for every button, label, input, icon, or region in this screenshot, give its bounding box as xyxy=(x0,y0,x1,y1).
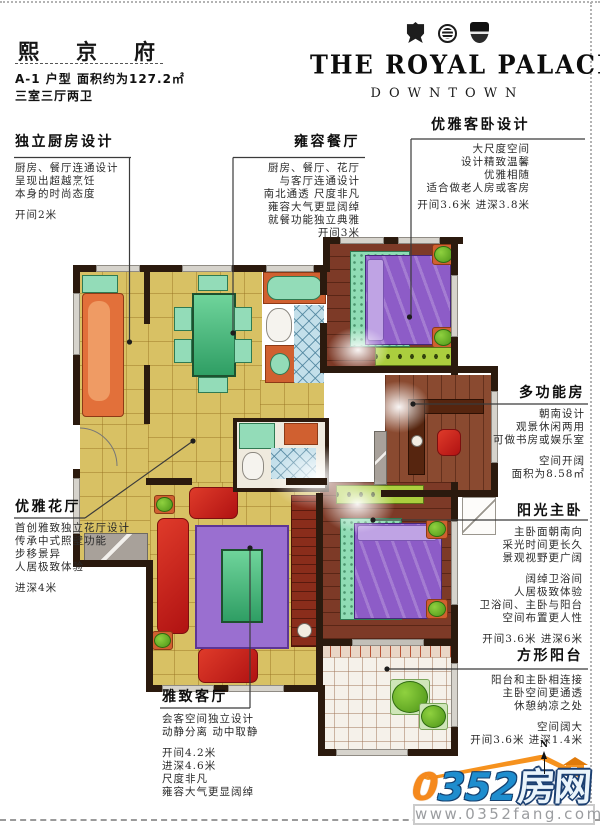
wall-segment xyxy=(144,365,150,424)
callout-title: 方形阳台 xyxy=(420,648,583,664)
callout-line: 就餐功能独立典雅 xyxy=(200,214,360,227)
page-border-top xyxy=(0,1,600,3)
north-arrow-icon: N xyxy=(536,741,552,774)
logo-digits: 352 xyxy=(437,765,519,809)
callout-title: 优雅客卧设计 xyxy=(330,117,530,133)
callout-guest-bedroom: 优雅客卧设计 大尺度空间 设计精致温馨 优雅相随 适合做老人房或客房 开间3.6… xyxy=(330,117,530,212)
callout-dimensions: 开间3.6米 进深3.8米 xyxy=(330,199,530,212)
wall-segment xyxy=(316,493,323,685)
page-title: 熙京府 xyxy=(18,36,192,66)
callout-line: 适合做老人房或客房 xyxy=(330,182,530,195)
desk-mirror xyxy=(411,435,423,447)
unit-area-line: A-1 户型 面积约为127.2㎡ xyxy=(15,70,185,87)
brand-badges xyxy=(310,20,585,43)
entry-door-gap xyxy=(73,425,80,469)
callout-title: 雅致客厅 xyxy=(162,689,312,705)
compass-label: N xyxy=(536,741,552,750)
callout-line: 主卧面朝南向 xyxy=(420,526,583,539)
round-seal-badge-icon xyxy=(438,24,457,43)
floorplan-flyer-page: 熙京府 A-1 户型 面积约为127.2㎡ 三室三厅两卫 THE ROYAL P… xyxy=(0,0,600,827)
callout-line: 空间阔大 xyxy=(420,721,583,734)
window xyxy=(182,265,232,272)
wall-segment xyxy=(320,323,327,373)
callout-line: 空间布置更人性 xyxy=(420,612,583,625)
wall-segment xyxy=(146,478,192,485)
window xyxy=(336,749,408,756)
callout-master-bedroom: 阳光主卧 主卧面朝南向 采光时间更长久 景观视野更广阔 阔绰卫浴间 人居极致体验… xyxy=(420,503,583,646)
kitchen-sink xyxy=(82,275,118,293)
site-logo: 0352房网 xyxy=(411,768,591,806)
bathtub xyxy=(267,276,322,300)
callout-multi-function: 多功能房 朝南设计 观景休闲两用 可做书房或娱乐室 空间开阔 面积为8.58㎡ xyxy=(425,385,585,481)
callout-line: 采光时间更长久 xyxy=(420,539,583,552)
brand-block: THE ROYAL PALACE DOWNTOWN xyxy=(310,20,585,101)
brand-name: THE ROYAL PALACE xyxy=(310,49,585,80)
wall-segment xyxy=(286,478,327,485)
toilet-icon xyxy=(242,452,264,480)
sofa-armchair xyxy=(198,648,258,683)
callout-line: 首创雅致独立花厅设计 xyxy=(15,522,165,535)
callout-line: 厨房、餐厅连通设计 xyxy=(15,162,145,175)
callout-line: 观景休闲两用 xyxy=(425,421,585,434)
callout-line: 休憩纳凉之处 xyxy=(420,700,583,713)
callout-dimensions: 进深4米 xyxy=(15,582,165,595)
callout-line: 开间4.2米 xyxy=(162,747,312,760)
callout-title: 独立厨房设计 xyxy=(15,134,145,150)
window xyxy=(96,265,140,272)
callout-line: 景观视野更广阔 xyxy=(420,552,583,565)
coffee-table xyxy=(221,549,263,623)
window xyxy=(266,265,314,272)
callout-line: 面积为8.58㎡ xyxy=(425,468,585,481)
callout-line: 本身的时尚态度 xyxy=(15,188,145,201)
callout-line: 会客空间独立设计 xyxy=(162,713,312,726)
dining-table xyxy=(192,293,236,377)
callout-living-room: 雅致客厅 会客空间独立设计 动静分离 动中取静 开间4.2米 进深4.6米 尺度… xyxy=(162,689,312,799)
bathroom2-sink xyxy=(284,423,318,445)
crest-badge-icon xyxy=(406,22,425,43)
window xyxy=(73,293,80,355)
dining-chair xyxy=(174,307,192,331)
callout-line: 朝南设计 xyxy=(425,408,585,421)
callout-line: 人居极致体验 xyxy=(420,586,583,599)
callout-title: 阳光主卧 xyxy=(420,503,583,519)
dining-chair xyxy=(174,339,192,363)
logo-cn-text: 房网 xyxy=(516,765,591,809)
wall-segment xyxy=(144,269,150,324)
callout-line: 人居极致体验 xyxy=(15,561,165,574)
wall-segment xyxy=(381,490,498,497)
wall-segment xyxy=(320,265,327,295)
callout-dimensions: 开间3.6米 进深6米 xyxy=(420,633,583,646)
dining-chair xyxy=(198,377,228,393)
callout-line: 阳台和主卧相连接 xyxy=(420,674,583,687)
callout-line: 传承中式照壁功能 xyxy=(15,535,165,548)
callout-line: 可做书房或娱乐室 xyxy=(425,434,585,447)
callout-line: 设计精致温馨 xyxy=(330,156,530,169)
callout-balcony: 方形阳台 阳台和主卧相连接 主卧空间更通透 休憩纳凉之处 空间阔大 开间3.6米… xyxy=(420,648,583,747)
callout-dimensions: 开间3.6米 进深1.4米 xyxy=(420,734,583,747)
callout-line: 大尺度空间 xyxy=(330,143,530,156)
sketch-highlight xyxy=(320,475,395,533)
title-divider xyxy=(15,63,163,64)
logo-zero: 0 xyxy=(410,765,440,809)
callout-line: 卫浴间、主卧与阳台 xyxy=(420,599,583,612)
sofa-armchair xyxy=(189,487,238,519)
callout-dimensions: 开间3米 xyxy=(200,227,360,240)
window xyxy=(352,639,424,646)
sketch-highlight xyxy=(368,381,430,433)
kitchen-counter-top xyxy=(88,301,110,401)
callout-flower-hall: 优雅花厅 首创雅致独立花厅设计 传承中式照壁功能 步移景异 人居极致体验 进深4… xyxy=(15,499,165,595)
callout-line: 主卧空间更通透 xyxy=(420,687,583,700)
window xyxy=(398,237,440,244)
callout-dimensions: 开间2米 xyxy=(15,209,145,222)
callout-line: 动静分离 动中取静 xyxy=(162,726,312,739)
wall-segment xyxy=(318,639,352,646)
toilet-icon xyxy=(266,308,292,342)
callout-line: 雍容大气更显阔绰 xyxy=(162,786,312,799)
dining-chair xyxy=(234,339,252,363)
callout-line: 进深4.6米 xyxy=(162,760,312,773)
brand-tagline: DOWNTOWN xyxy=(310,86,585,101)
callout-line: 呈现出超越烹饪 xyxy=(15,175,145,188)
room-count-line: 三室三厅两卫 xyxy=(15,87,93,104)
callout-line: 优雅相随 xyxy=(330,169,530,182)
dining-chair xyxy=(234,307,252,331)
shield-badge-icon xyxy=(470,22,489,43)
callout-line: 阔绰卫浴间 xyxy=(420,573,583,586)
callout-kitchen: 独立厨房设计 厨房、餐厅连通设计 呈现出超越烹饪 本身的时尚态度 开间2米 xyxy=(15,134,145,222)
tv-cabinet-knob xyxy=(297,623,312,638)
sink-bowl xyxy=(270,353,290,375)
plant-icon xyxy=(152,631,173,650)
callout-title: 多功能房 xyxy=(425,385,585,401)
callout-title: 优雅花厅 xyxy=(15,499,165,515)
wall-segment xyxy=(323,366,498,373)
dining-chair xyxy=(198,275,228,291)
callout-line: 尺度非凡 xyxy=(162,773,312,786)
callout-line: 空间开阔 xyxy=(425,455,585,468)
page-border-right xyxy=(590,2,592,822)
window xyxy=(451,275,458,337)
wall-segment xyxy=(318,685,325,756)
callout-line: 步移景异 xyxy=(15,548,165,561)
